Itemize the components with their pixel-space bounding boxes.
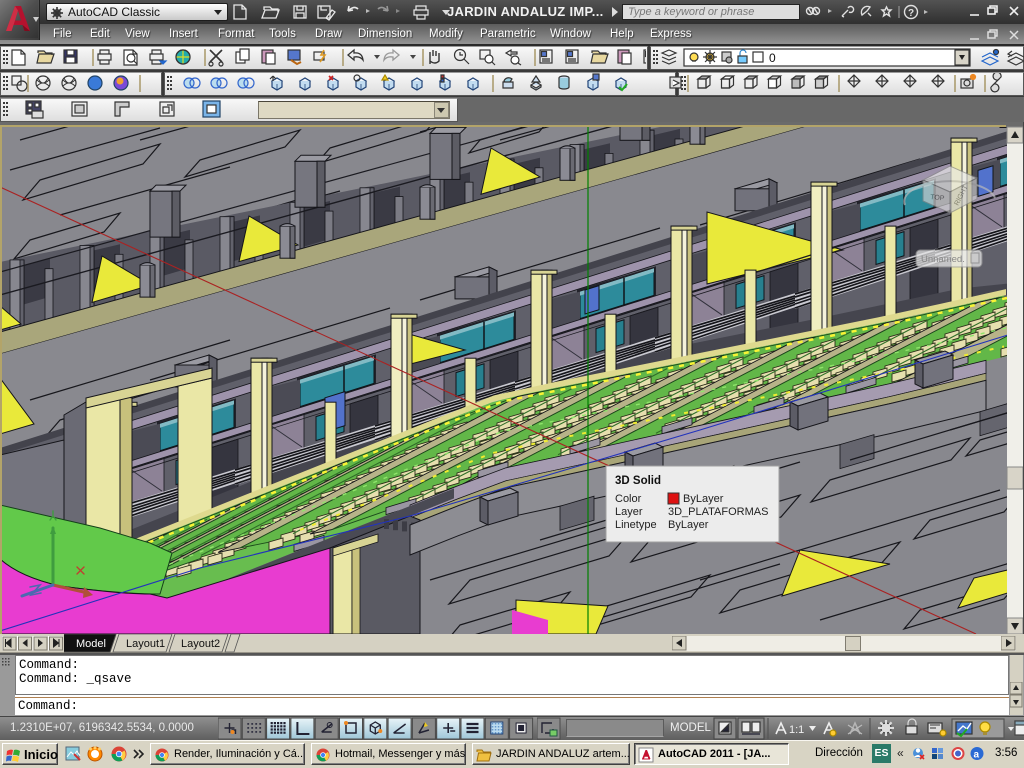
svg-text:Linetype: Linetype	[615, 519, 657, 531]
svg-text:Unnamed.: Unnamed.	[921, 254, 965, 265]
svg-text:?: ?	[908, 8, 914, 19]
svg-text:ByLayer: ByLayer	[668, 519, 709, 531]
svg-text:3D Solid: 3D Solid	[615, 475, 661, 487]
svg-text:Layout1: Layout1	[126, 638, 165, 650]
svg-text:Color: Color	[615, 493, 642, 505]
svg-text:3D_PLATAFORMAS: 3D_PLATAFORMAS	[668, 506, 768, 518]
svg-text:Layout2: Layout2	[181, 638, 220, 650]
svg-text:0: 0	[769, 51, 776, 65]
svg-text:a: a	[974, 750, 980, 761]
svg-text:Layer: Layer	[615, 506, 643, 518]
svg-text:Model: Model	[76, 638, 106, 650]
svg-text:ByLayer: ByLayer	[683, 493, 724, 505]
svg-text:1:1: 1:1	[789, 724, 804, 736]
